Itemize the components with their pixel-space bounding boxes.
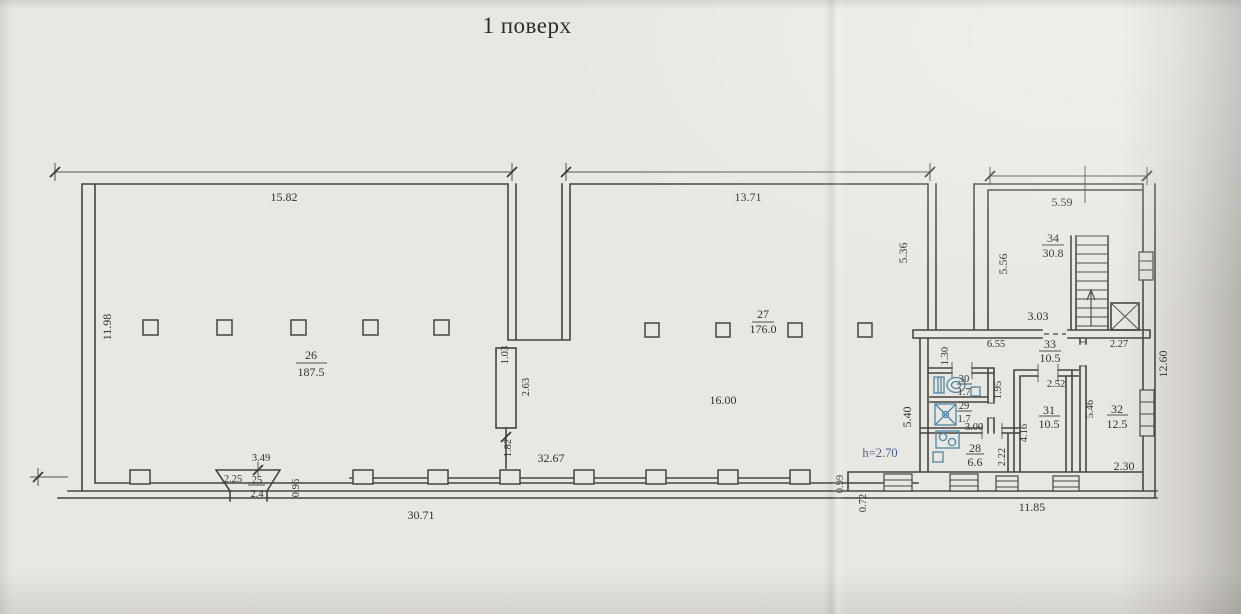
ceiling-height-note: h=2.70 (862, 446, 897, 460)
room-number: 34 (1047, 231, 1059, 245)
room-number: 31 (1043, 403, 1055, 417)
dim-label-5-59: 5.59 (1052, 195, 1073, 209)
dim-label-15-82: 15.82 (271, 190, 298, 204)
column (645, 323, 659, 337)
shower-tray-icon (935, 404, 956, 425)
column (858, 323, 872, 337)
staircase (1076, 236, 1108, 326)
sink-icon (971, 387, 980, 396)
room-label-fraction-bars (248, 245, 1128, 485)
window-symbol (1139, 252, 1153, 280)
kitchen-sink-icon (933, 452, 943, 462)
shaft-x-box (1111, 303, 1139, 330)
column (143, 320, 158, 335)
room-number: 29 (959, 401, 970, 412)
window-symbol (1140, 390, 1154, 436)
pilaster (718, 470, 738, 484)
dim-label-2-22: 2.22 (997, 448, 1008, 466)
dim-label-5-56: 5.56 (996, 254, 1010, 275)
room-number: 28 (969, 441, 981, 455)
floor-plan-drawing: 15.82 13.71 5.59 11.98 1.03 2.63 1.82 32… (0, 0, 1241, 614)
dim-label-5-40: 5.40 (900, 407, 914, 428)
pilaster (790, 470, 810, 484)
dim-label-2-63: 2.63 (521, 378, 532, 396)
room-number: 27 (757, 307, 769, 321)
dim-label-5-46: 5.46 (1085, 400, 1096, 418)
window-symbol (1053, 476, 1079, 491)
room-area: 6.6 (968, 455, 983, 469)
pilaster (646, 470, 666, 484)
dim-label-1-03: 1.03 (500, 346, 511, 364)
dim-label-16-00: 16.00 (710, 393, 737, 407)
room-number: 25 (252, 475, 263, 486)
room-area: 187.5 (298, 365, 325, 379)
dim-label-5-36: 5.36 (896, 243, 910, 264)
room-area: 12.5 (1107, 417, 1128, 431)
room-area: 10.5 (1039, 417, 1060, 431)
room-area: 30.8 (1043, 246, 1064, 260)
scanned-floor-plan-page: 1 поверх (0, 0, 1241, 614)
pilaster (500, 470, 520, 484)
column (291, 320, 306, 335)
pilaster (130, 470, 150, 484)
pilaster (428, 470, 448, 484)
dimension-lines (30, 163, 1152, 486)
room-number: 33 (1044, 337, 1056, 351)
dim-label-3-03: 3.03 (1028, 309, 1049, 323)
column (217, 320, 232, 335)
dim-label-0-96: 0.96 (291, 479, 302, 497)
window-symbol (996, 476, 1018, 491)
room-number: 30 (959, 374, 970, 385)
dim-label-11-98: 11.98 (100, 314, 114, 341)
pilaster (353, 470, 373, 484)
room-area: 1.7 (957, 387, 970, 398)
dim-label-0-72: 0.72 (858, 494, 869, 512)
dim-label-3-49: 3.49 (252, 453, 270, 464)
dim-label-12-60: 12.60 (1156, 351, 1170, 378)
column (434, 320, 449, 335)
dim-label-1-30: 1.30 (940, 347, 951, 365)
column (788, 323, 802, 337)
dim-label-2-30: 2.30 (1114, 459, 1135, 473)
room-area: 1.7 (957, 414, 970, 425)
room-number: 32 (1111, 402, 1123, 416)
dim-label-6-55: 6.55 (987, 339, 1005, 350)
column (363, 320, 378, 335)
pilaster (574, 470, 594, 484)
window-symbol (950, 474, 978, 491)
dim-label-4-16: 4.16 (1019, 424, 1030, 442)
dim-label-11-85: 11.85 (1019, 500, 1046, 514)
window-symbol (884, 474, 912, 491)
room-area: 176.0 (750, 322, 777, 336)
room-area: 2.4 (250, 489, 264, 500)
dim-label-32-67: 32.67 (538, 451, 565, 465)
dim-label-1-95: 1.95 (993, 381, 1004, 399)
dim-label-1-82: 1.82 (503, 439, 514, 457)
dim-label-30-71: 30.71 (408, 508, 435, 522)
dim-label-2-27: 2.27 (1110, 339, 1128, 350)
dim-label-13-71: 13.71 (735, 190, 762, 204)
room-number: 26 (305, 348, 317, 362)
column (716, 323, 730, 337)
room-area: 10.5 (1040, 351, 1061, 365)
dim-label-2-52: 2.52 (1047, 379, 1065, 390)
dim-label-0-99: 0.99 (835, 475, 846, 493)
dim-label-2-25: 2.25 (224, 474, 242, 485)
windows (884, 252, 1154, 491)
